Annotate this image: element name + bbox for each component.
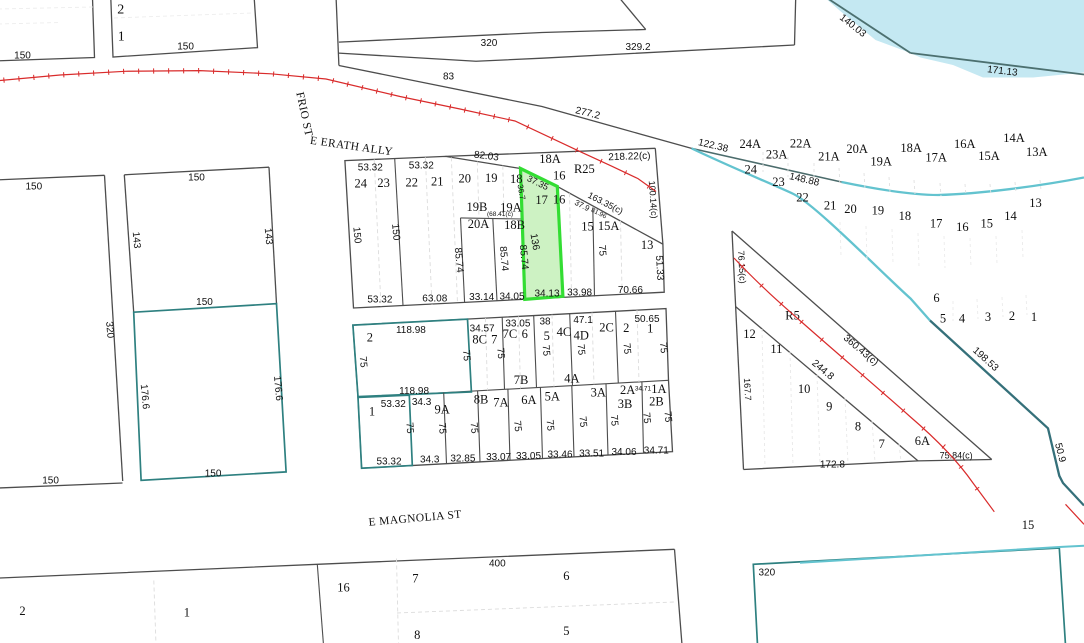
svg-text:2B: 2B (649, 394, 664, 408)
svg-text:320: 320 (481, 38, 498, 49)
svg-text:176.6: 176.6 (138, 384, 151, 410)
svg-text:24: 24 (355, 176, 368, 190)
svg-text:150: 150 (177, 42, 194, 53)
svg-text:7: 7 (491, 333, 497, 347)
svg-text:15: 15 (1022, 518, 1035, 532)
svg-text:20: 20 (459, 172, 472, 186)
svg-text:7: 7 (412, 572, 418, 586)
svg-text:4D: 4D (574, 329, 589, 343)
svg-text:75: 75 (511, 420, 523, 432)
svg-text:2: 2 (1009, 309, 1015, 323)
svg-text:75: 75 (544, 419, 556, 431)
svg-text:34.71: 34.71 (644, 445, 669, 456)
svg-text:75: 75 (357, 356, 369, 368)
svg-text:85.74: 85.74 (517, 244, 530, 270)
svg-text:6: 6 (933, 291, 939, 305)
svg-text:19: 19 (485, 171, 498, 185)
svg-text:19A: 19A (870, 155, 892, 169)
svg-text:47.1: 47.1 (573, 315, 593, 326)
svg-text:2: 2 (623, 321, 629, 335)
svg-text:16: 16 (956, 220, 969, 234)
svg-text:15A: 15A (598, 219, 620, 233)
svg-text:7B: 7B (514, 373, 529, 387)
svg-text:24: 24 (744, 162, 757, 176)
svg-text:75: 75 (640, 412, 652, 424)
svg-text:70.66: 70.66 (618, 285, 643, 296)
svg-text:34.3: 34.3 (412, 397, 432, 408)
svg-text:75: 75 (662, 411, 674, 423)
svg-text:75: 75 (403, 422, 415, 434)
svg-text:1: 1 (647, 321, 653, 335)
svg-text:150: 150 (188, 173, 205, 184)
svg-text:9A: 9A (435, 402, 450, 416)
svg-text:85.74: 85.74 (452, 247, 465, 273)
svg-text:18A: 18A (900, 141, 922, 155)
svg-text:R5: R5 (785, 308, 800, 322)
svg-text:75: 75 (540, 344, 552, 356)
svg-text:75: 75 (468, 422, 480, 434)
svg-text:14: 14 (1004, 209, 1017, 223)
svg-text:2C: 2C (599, 320, 614, 334)
svg-text:34.05: 34.05 (499, 292, 524, 303)
svg-text:16A: 16A (954, 137, 976, 151)
svg-text:5: 5 (563, 624, 569, 638)
svg-text:33.05: 33.05 (516, 451, 541, 462)
svg-text:75: 75 (596, 245, 608, 257)
svg-text:83: 83 (443, 72, 455, 83)
svg-text:9: 9 (826, 399, 832, 413)
svg-text:150: 150 (350, 226, 362, 244)
svg-text:22: 22 (405, 175, 418, 189)
svg-text:4A: 4A (564, 372, 579, 386)
svg-text:75: 75 (436, 422, 448, 434)
svg-text:320: 320 (103, 321, 115, 339)
svg-text:17: 17 (535, 193, 548, 207)
svg-text:63.08: 63.08 (422, 293, 447, 304)
svg-text:143: 143 (262, 227, 274, 245)
svg-text:38: 38 (539, 317, 551, 328)
svg-text:33.07: 33.07 (486, 452, 511, 463)
svg-text:4: 4 (959, 312, 966, 326)
svg-text:24A: 24A (740, 137, 762, 151)
svg-text:150: 150 (42, 475, 59, 486)
svg-text:32.85: 32.85 (450, 453, 475, 464)
svg-text:75: 75 (460, 349, 472, 361)
svg-text:7A: 7A (493, 395, 508, 409)
svg-text:75: 75 (494, 347, 506, 359)
svg-text:13: 13 (1029, 196, 1042, 210)
svg-text:1: 1 (1031, 310, 1037, 324)
svg-text:329.2: 329.2 (625, 42, 650, 53)
svg-text:2: 2 (19, 604, 25, 618)
svg-text:8: 8 (414, 628, 420, 642)
svg-text:4C: 4C (557, 325, 572, 339)
svg-text:19: 19 (872, 203, 885, 217)
svg-text:14A: 14A (1003, 131, 1025, 145)
svg-text:6: 6 (522, 327, 528, 341)
svg-text:8: 8 (855, 419, 861, 433)
svg-text:400: 400 (489, 558, 506, 569)
svg-text:172.8: 172.8 (820, 459, 845, 470)
svg-text:23: 23 (377, 176, 390, 190)
svg-text:53.32: 53.32 (381, 399, 406, 410)
svg-text:75: 75 (621, 343, 633, 355)
svg-text:21: 21 (824, 198, 837, 212)
svg-text:17: 17 (930, 217, 943, 231)
svg-text:118.98: 118.98 (396, 325, 426, 336)
svg-text:1: 1 (118, 30, 125, 45)
svg-text:6: 6 (563, 569, 569, 583)
svg-text:34.13: 34.13 (534, 289, 559, 300)
svg-text:75: 75 (577, 416, 589, 428)
svg-text:6A: 6A (521, 393, 536, 407)
svg-text:18A: 18A (539, 152, 561, 166)
svg-text:218.22(c): 218.22(c) (608, 151, 651, 163)
svg-text:20A: 20A (468, 217, 490, 231)
svg-text:33.46: 33.46 (547, 449, 572, 460)
svg-text:20A: 20A (846, 142, 868, 156)
svg-text:10: 10 (798, 382, 811, 396)
svg-text:1: 1 (184, 605, 190, 619)
svg-text:53.32: 53.32 (376, 457, 401, 468)
svg-text:23A: 23A (766, 147, 788, 161)
svg-text:15A: 15A (978, 149, 1000, 163)
svg-text:16: 16 (337, 580, 350, 594)
svg-text:1: 1 (369, 405, 375, 419)
svg-text:53.32: 53.32 (358, 163, 383, 174)
svg-text:21A: 21A (818, 150, 840, 164)
svg-text:176.6: 176.6 (271, 375, 284, 401)
svg-text:18: 18 (899, 209, 912, 223)
svg-text:5A: 5A (545, 390, 560, 404)
svg-text:75: 75 (608, 414, 620, 426)
svg-text:150: 150 (389, 223, 401, 241)
svg-text:118.98: 118.98 (399, 386, 429, 397)
svg-text:75: 75 (657, 342, 669, 354)
svg-text:18B: 18B (504, 218, 525, 232)
svg-text:320: 320 (759, 568, 776, 579)
svg-text:(68.41(c): (68.41(c) (487, 211, 513, 218)
svg-text:19B: 19B (466, 200, 487, 214)
svg-text:167.7: 167.7 (742, 378, 753, 401)
svg-text:6A: 6A (915, 434, 930, 448)
svg-text:7: 7 (879, 437, 885, 451)
svg-text:150: 150 (196, 297, 213, 308)
svg-text:3A: 3A (591, 386, 606, 400)
svg-text:5: 5 (940, 312, 946, 326)
svg-text:3: 3 (985, 310, 991, 324)
svg-text:34.71: 34.71 (635, 385, 652, 392)
svg-text:53.32: 53.32 (367, 295, 392, 306)
svg-text:16: 16 (553, 169, 566, 183)
svg-text:22: 22 (796, 191, 809, 205)
svg-text:8B: 8B (474, 392, 489, 406)
svg-text:34.3: 34.3 (420, 454, 440, 465)
svg-text:5: 5 (544, 329, 550, 343)
svg-text:150: 150 (205, 469, 222, 480)
svg-text:75.84(c): 75.84(c) (940, 451, 973, 461)
svg-text:21: 21 (431, 174, 444, 188)
svg-text:11: 11 (770, 342, 782, 356)
svg-text:150: 150 (14, 51, 31, 62)
svg-text:13: 13 (641, 238, 654, 252)
svg-text:75: 75 (575, 344, 587, 356)
svg-text:20: 20 (844, 202, 857, 216)
svg-text:33.98: 33.98 (567, 287, 592, 298)
svg-text:85.74: 85.74 (497, 246, 510, 272)
svg-text:34.06: 34.06 (611, 447, 636, 458)
svg-text:51.33: 51.33 (653, 255, 665, 281)
svg-text:7C: 7C (503, 327, 518, 341)
svg-text:33.51: 33.51 (579, 448, 604, 459)
svg-text:13A: 13A (1026, 145, 1048, 159)
svg-text:R25: R25 (574, 162, 595, 176)
svg-text:2: 2 (117, 3, 124, 18)
svg-text:15: 15 (581, 220, 594, 234)
svg-text:12: 12 (743, 327, 756, 341)
svg-text:3B: 3B (618, 397, 633, 411)
svg-text:143: 143 (130, 231, 142, 249)
svg-text:8C: 8C (472, 333, 487, 347)
svg-text:17A: 17A (925, 151, 947, 165)
svg-text:2A: 2A (620, 383, 635, 397)
svg-text:16: 16 (553, 193, 566, 207)
svg-text:53.32: 53.32 (409, 160, 434, 171)
svg-text:2: 2 (367, 331, 373, 345)
svg-text:22A: 22A (790, 137, 812, 151)
svg-text:23: 23 (772, 175, 785, 189)
svg-text:150: 150 (25, 181, 42, 192)
svg-text:15: 15 (980, 217, 993, 231)
svg-text:33.14: 33.14 (469, 292, 494, 303)
